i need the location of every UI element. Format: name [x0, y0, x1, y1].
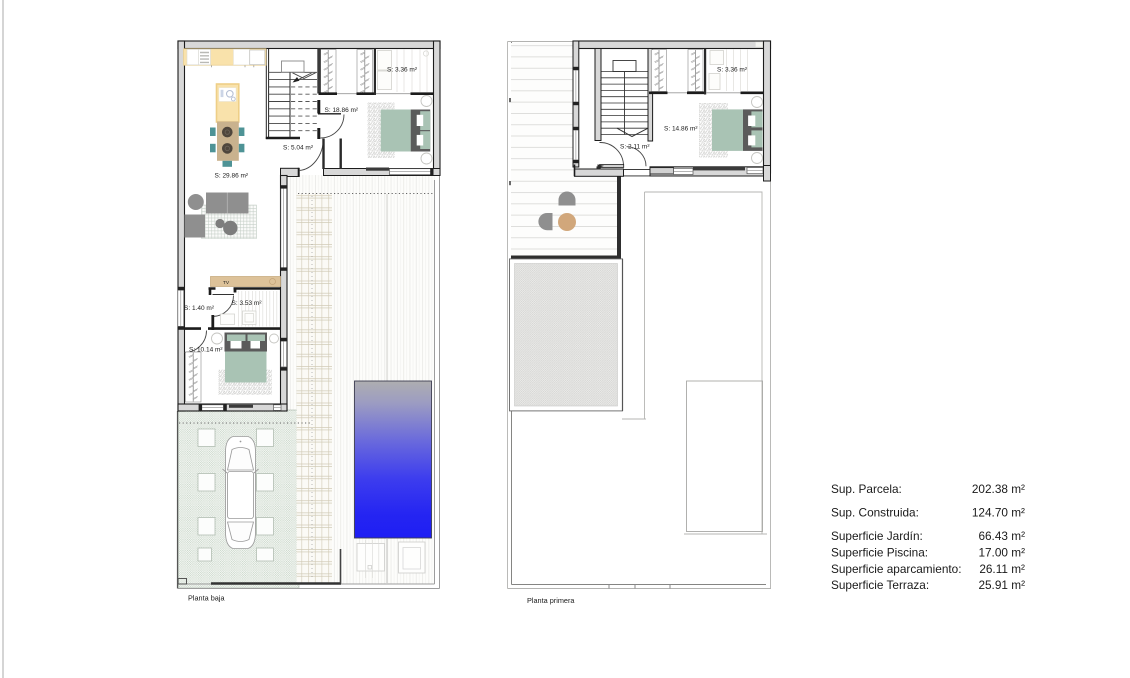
svg-text:202.38 m²: 202.38 m²	[972, 482, 1025, 496]
svg-text:S: 29.86 m²: S: 29.86 m²	[215, 173, 249, 180]
svg-text:S: 2.11 m²: S: 2.11 m²	[620, 144, 650, 151]
svg-text:S: 10.14 m²: S: 10.14 m²	[189, 347, 223, 354]
svg-text:Superficie aparcamiento:: Superficie aparcamiento:	[831, 562, 962, 576]
svg-text:26.11 m²: 26.11 m²	[979, 562, 1025, 576]
svg-text:S: 1.40 m²: S: 1.40 m²	[184, 305, 215, 312]
svg-text:Planta primera: Planta primera	[527, 596, 575, 605]
svg-text:Superficie Terraza:: Superficie Terraza:	[831, 578, 929, 592]
svg-text:S: 14.86 m²: S: 14.86 m²	[664, 126, 698, 133]
svg-text:Planta baja: Planta baja	[188, 594, 225, 603]
svg-text:Sup. Parcela:: Sup. Parcela:	[831, 482, 902, 496]
svg-text:17.00 m²: 17.00 m²	[978, 546, 1025, 560]
svg-text:124.70 m²: 124.70 m²	[972, 506, 1025, 520]
svg-text:Sup. Construida:: Sup. Construida:	[831, 506, 919, 520]
svg-text:66.43 m²: 66.43 m²	[978, 529, 1025, 543]
svg-text:Superficie Jardín:: Superficie Jardín:	[831, 529, 923, 543]
svg-text:S: 3.36 m²: S: 3.36 m²	[717, 67, 748, 74]
svg-text:25.91 m²: 25.91 m²	[978, 578, 1025, 592]
svg-text:S: 5.04 m²: S: 5.04 m²	[283, 145, 314, 152]
svg-text:TV: TV	[223, 280, 230, 286]
svg-text:S: 18.86 m²: S: 18.86 m²	[325, 107, 359, 114]
svg-text:S: 3.53 m²: S: 3.53 m²	[232, 300, 263, 307]
svg-text:S: 3.36 m²: S: 3.36 m²	[387, 67, 418, 74]
svg-text:Superficie Piscina:: Superficie Piscina:	[831, 546, 928, 560]
